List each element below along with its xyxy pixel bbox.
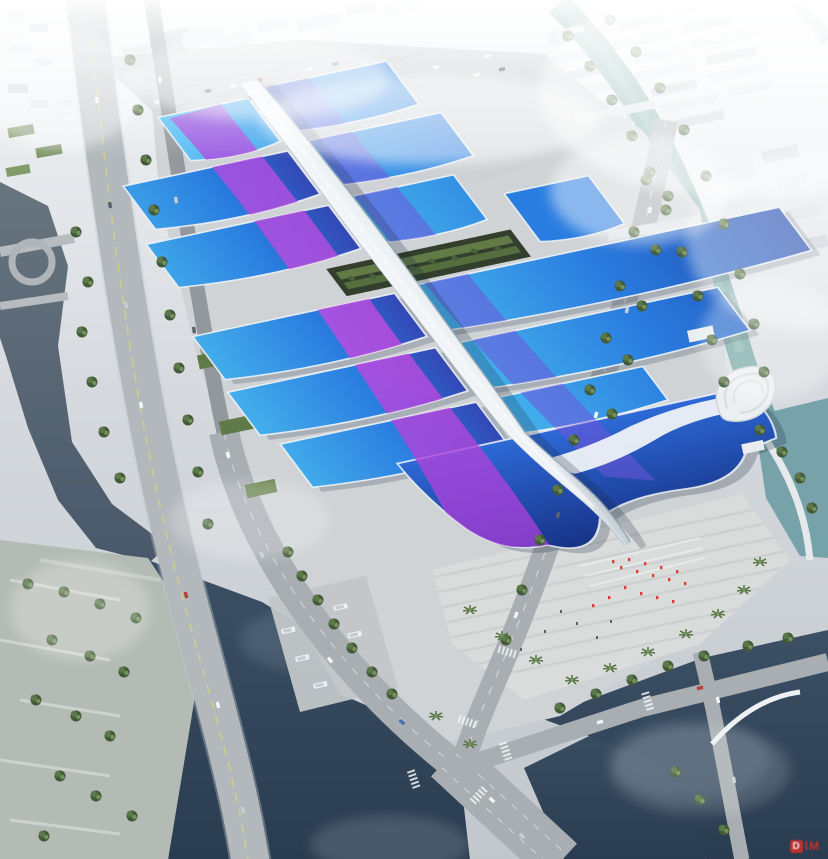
watermark-text: IM bbox=[805, 839, 820, 853]
watermark-logo-icon: D bbox=[790, 840, 803, 853]
aerial-rendering-canvas: D IM bbox=[0, 0, 828, 859]
aerial-rendering bbox=[0, 0, 828, 859]
watermark: D IM bbox=[790, 839, 820, 853]
